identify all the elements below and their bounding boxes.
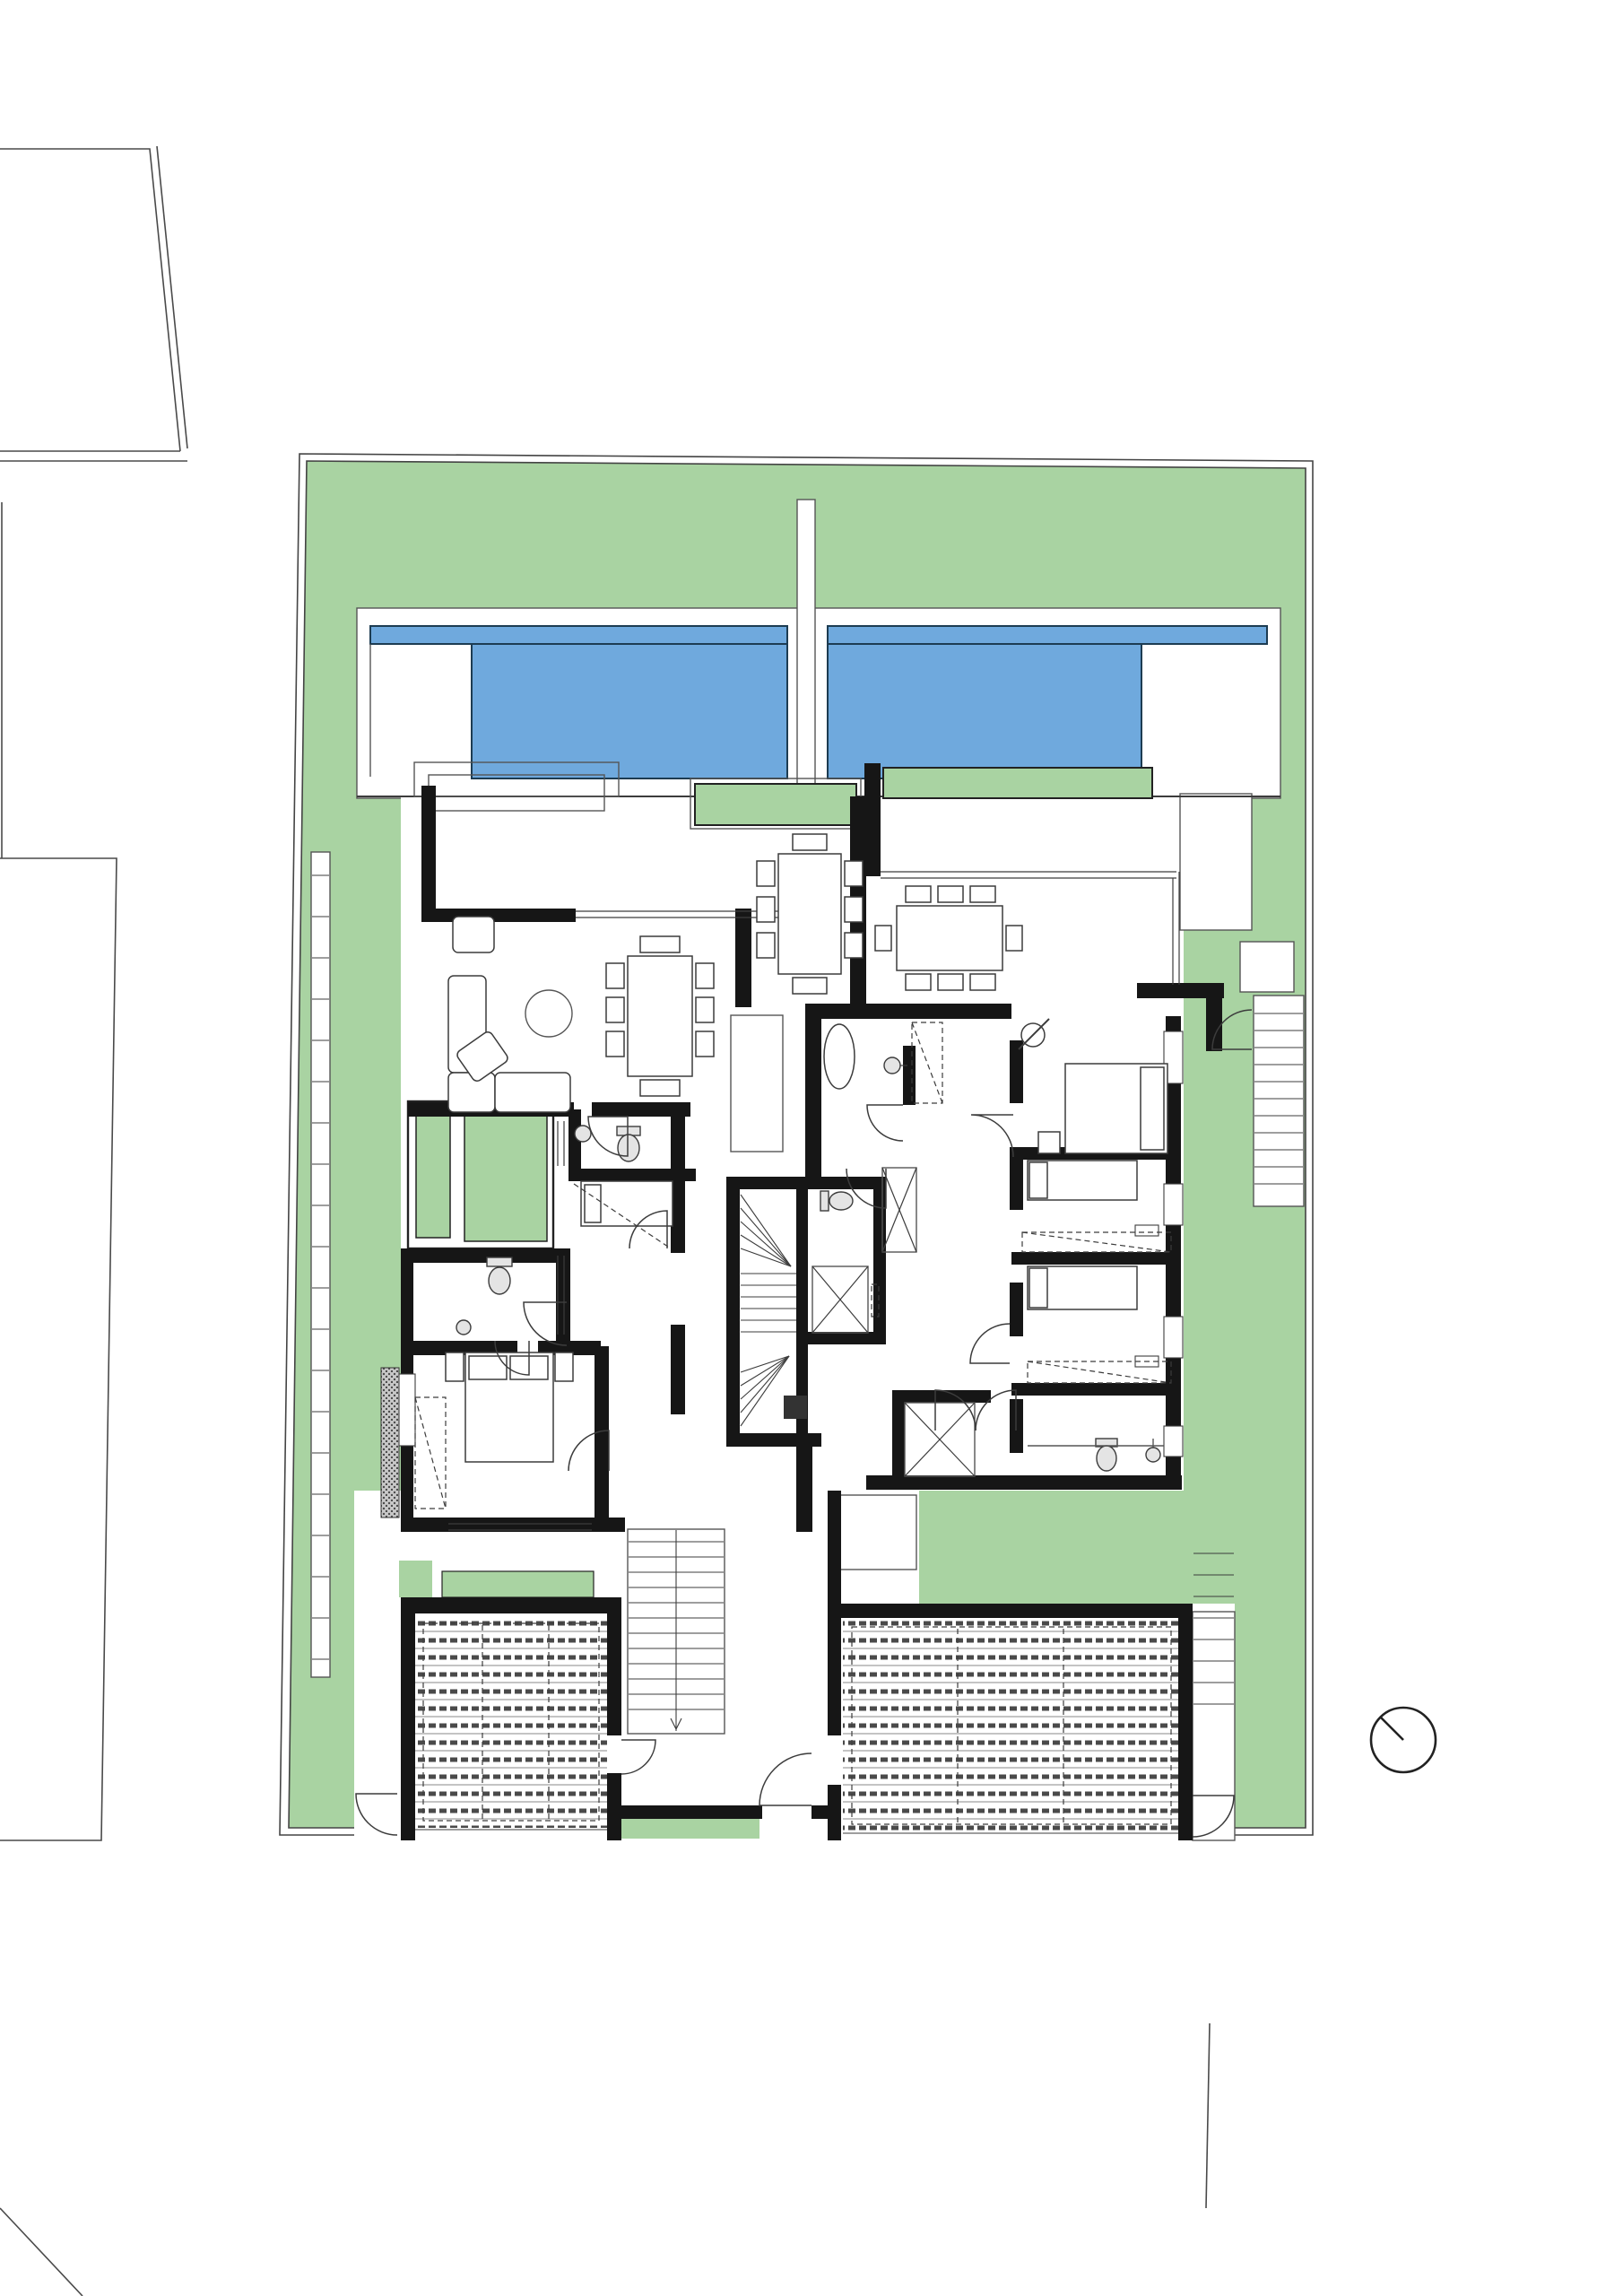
party-wall-garden-strip (797, 500, 815, 804)
floor-plan-canvas (0, 0, 1623, 2296)
garage-left-ramp (415, 1616, 607, 1828)
planter-north-right (883, 768, 1152, 798)
planter-entry-band (621, 1819, 759, 1839)
bed-right-3 (1028, 1266, 1137, 1309)
plan-page (0, 0, 1623, 2296)
east-side-steps (1254, 996, 1304, 1206)
planter-north-left (695, 784, 856, 825)
east-side-walk (1193, 1612, 1235, 1840)
east-terrace-step (1240, 942, 1294, 992)
green-piece-west (399, 1561, 432, 1597)
planter-garage-left-band (442, 1571, 594, 1597)
planter-west-wide (464, 1110, 547, 1241)
planter-west-narrow (416, 1114, 450, 1238)
west-boundary-wall (311, 852, 330, 1677)
north-arrow-icon (1371, 1708, 1436, 1772)
pool-right (828, 644, 1141, 778)
bathtub (824, 1024, 855, 1089)
basin-bath-left (456, 1320, 471, 1335)
gabion-wall (381, 1368, 399, 1518)
bed-right-2 (1028, 1161, 1137, 1200)
east-upper-terrace (1180, 794, 1252, 930)
pool-left (472, 644, 787, 778)
garage-right-ramp (843, 1620, 1178, 1831)
pool-left-overflow-band (370, 626, 787, 644)
pool-right-overflow-band (828, 626, 1267, 644)
basin-powder-room (575, 1126, 591, 1142)
